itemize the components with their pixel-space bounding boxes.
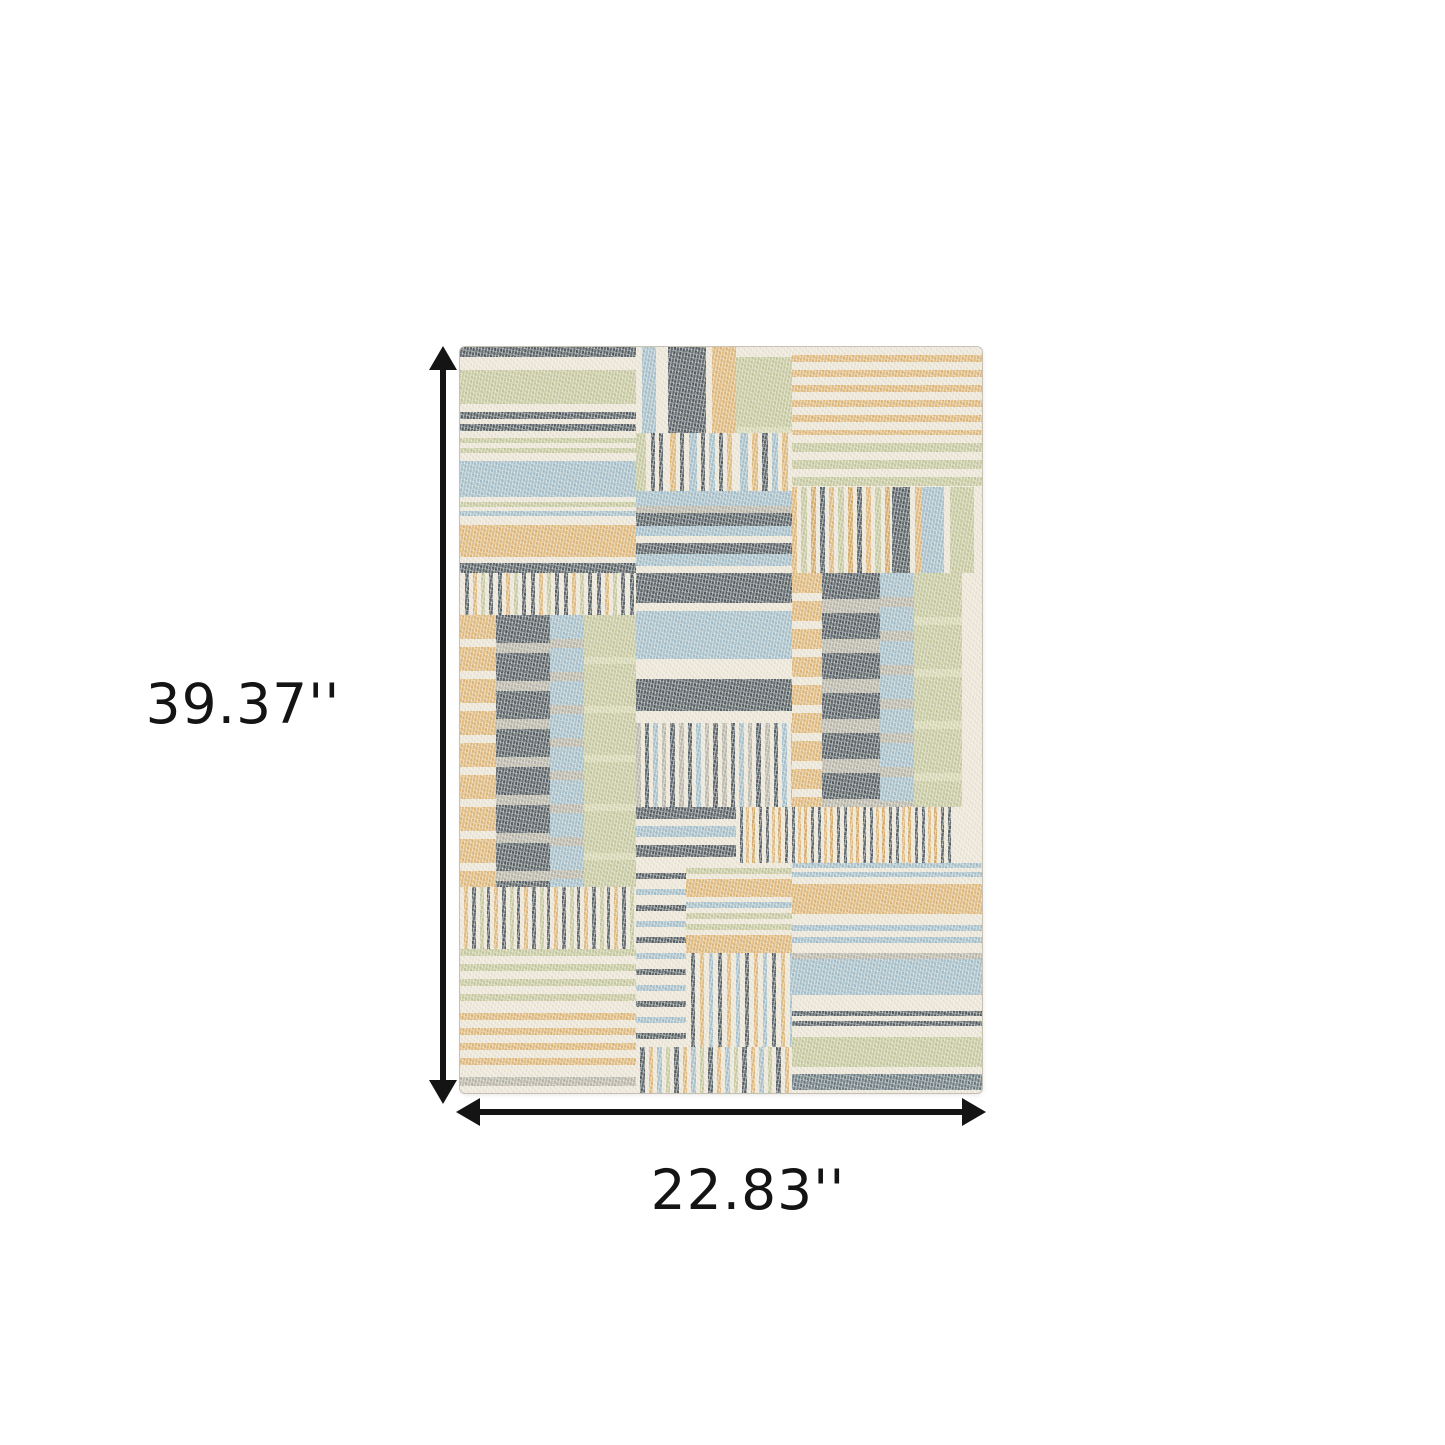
- rug-texture: [460, 347, 982, 1093]
- arrow-shaft: [472, 1109, 970, 1115]
- arrow-shaft: [440, 362, 446, 1086]
- height-dimension-label: 39.37'': [123, 677, 363, 732]
- arrow-down-head-icon: [429, 1080, 457, 1104]
- arrow-right-head-icon: [962, 1098, 986, 1126]
- width-dimension-label: 22.83'': [628, 1163, 868, 1218]
- rug-image: [460, 347, 982, 1093]
